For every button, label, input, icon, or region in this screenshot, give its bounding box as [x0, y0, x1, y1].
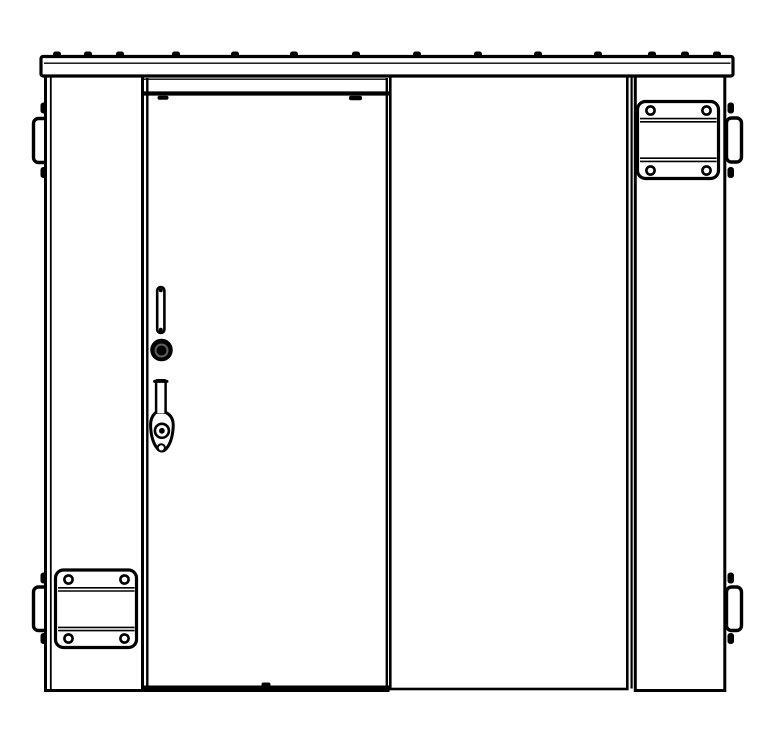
screw-bl-bottom-right [120, 634, 128, 642]
rail-fastener-bump-2 [84, 52, 92, 58]
rail-fastener-bump-14 [713, 52, 721, 58]
rail-fastener-bump-11 [594, 52, 602, 58]
rail-fastener-bump-3 [116, 52, 124, 58]
handle-bottom-screw [158, 444, 165, 451]
rail-fastener-bump-9 [474, 52, 482, 58]
door-top-tick-right [349, 96, 362, 101]
rail-fastener-bump-13 [681, 52, 689, 58]
edge-nub-right-bottom-lower [728, 633, 735, 644]
lift-tab-right-top [727, 118, 742, 162]
edge-nub-right-bottom-upper [728, 573, 735, 584]
screw-tr-bottom-right [702, 166, 710, 174]
handle-pivot-dot [159, 428, 165, 434]
screw-bl-top-right [120, 575, 128, 583]
edge-nub-right-top-lower [728, 167, 735, 178]
door-top-tick-left [158, 96, 169, 100]
top-rail-cap [41, 57, 733, 77]
rail-fastener-bump-8 [413, 52, 421, 58]
screw-tr-bottom-left [646, 166, 654, 174]
screw-bl-top-left [64, 575, 72, 583]
shelter-elevation-drawing [0, 0, 775, 732]
rod-slot-top-tip [159, 288, 163, 292]
rail-fastener-bump-5 [231, 52, 239, 58]
screw-tr-top-right [702, 106, 710, 114]
door-bottom-tick [262, 683, 271, 688]
screw-tr-top-left [646, 106, 654, 114]
rail-fastener-bump-4 [172, 52, 180, 58]
rail-fastener-bump-10 [534, 52, 542, 58]
lift-tab-right-bottom [727, 587, 742, 631]
door-lock-cylinder [150, 339, 173, 362]
rail-fastener-bump-12 [648, 52, 656, 58]
middle-wall-panel [390, 76, 627, 689]
rail-fastener-bump-7 [352, 52, 360, 58]
rail-fastener-bump-6 [290, 52, 298, 58]
edge-nub-right-top-upper [728, 103, 735, 114]
rod-slot-bottom-tip [159, 328, 163, 332]
technical-drawing-canvas [0, 0, 775, 732]
rail-fastener-bump-1 [53, 52, 61, 58]
door-handle-bar [156, 380, 166, 413]
door-lock-rod-slot [157, 287, 164, 333]
screw-bl-bottom-left [64, 634, 72, 642]
